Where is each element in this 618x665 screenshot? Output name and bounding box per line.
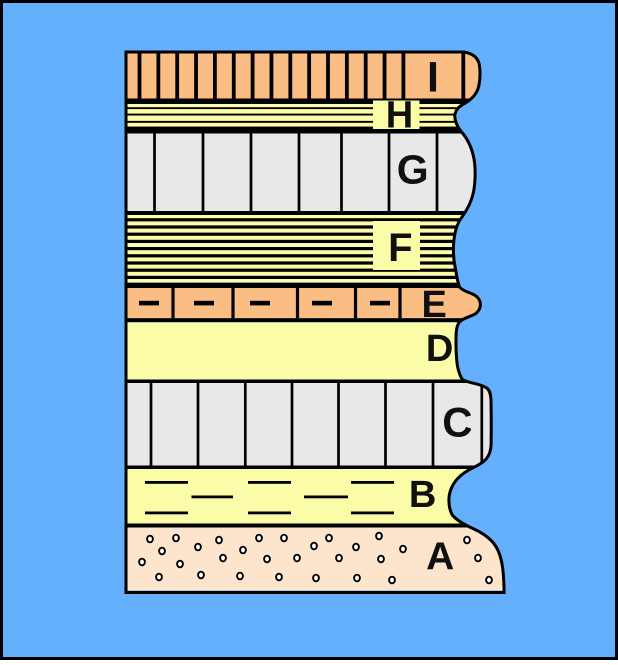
svg-text:H: H [386,95,413,137]
svg-text:G: G [397,146,429,192]
svg-text:A: A [426,535,454,578]
svg-text:F: F [388,226,412,270]
svg-text:I: I [427,54,439,102]
svg-text:D: D [426,328,453,370]
svg-text:E: E [422,284,447,326]
svg-text:B: B [409,474,436,516]
svg-text:C: C [442,399,472,446]
